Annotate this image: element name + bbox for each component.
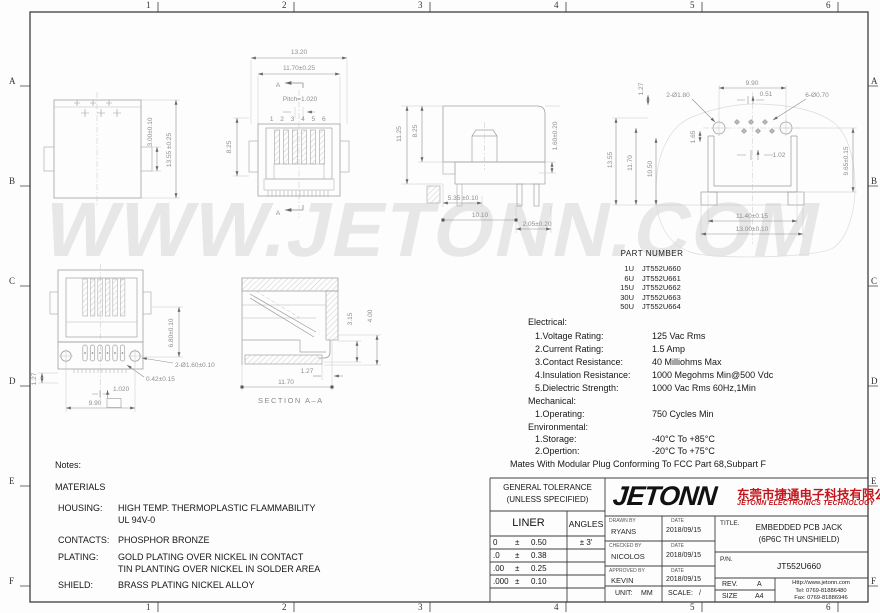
footprint-dim-11-40: 11.40±0.15 [736, 213, 768, 220]
spec-value: 1.5 Amp [652, 344, 685, 354]
part-number-title: PART NUMBER [598, 249, 706, 258]
footprint-dim-1-65: 1.65 [690, 130, 697, 143]
spec-line: 3.Contact Resistance:40 Milliohms Max [535, 357, 623, 367]
spec-value: 750 Cycles Min [652, 409, 714, 419]
tol-digits: .000 [493, 577, 509, 586]
housing-label: HOUSING: [58, 503, 103, 513]
front-view-pin-numbers: 1 2 3 4 5 6 [270, 116, 328, 123]
spec-line: 2.Current Rating:1.5 Amp [535, 344, 604, 354]
spec-value: 1000 Megohms Min@500 Vdc [652, 370, 773, 380]
bottom-view-pitch: 1.020 [113, 386, 130, 393]
side-view-dim-5-35: 5.35 ±0.10 [448, 195, 479, 202]
materials-heading: MATERIALS [55, 482, 105, 492]
checked-by-label: CHECKED BY [609, 543, 642, 549]
drawn-date: 2018/09/15 [666, 527, 701, 534]
top-view-dim-3-00: 3.00±0.10 [147, 117, 154, 146]
grid-row-label: C [871, 276, 877, 286]
spec-value: 1000 Vac Rms 60Hz,1Min [652, 383, 756, 393]
pn-label: P/N. [720, 556, 733, 563]
tol-pm: ± [515, 551, 519, 560]
part-pn: JT552U661 [642, 274, 681, 283]
front-view [233, 58, 349, 218]
company-name-english: JETONN ELECTRONICS TECHNOLOGY [737, 500, 875, 507]
drawing-sheet: WWW.JETONN.COM [0, 0, 880, 613]
part-number-row: 15UJT552U662 [602, 283, 681, 292]
spec-label: 2.Opertion: [535, 446, 580, 456]
part-pn: JT552U660 [642, 264, 681, 273]
part-qty: 6U [602, 274, 634, 283]
spec-line: 4.Insulation Resistance:1000 Megohms Min… [535, 370, 631, 380]
front-view-dim-11-70: 11.70±0.25 [283, 65, 315, 72]
general-tolerance-line1: GENERAL TOLERANCE [490, 483, 605, 492]
part-qty: 30U [602, 293, 634, 302]
part-number-row: 50UJT552U664 [602, 302, 681, 311]
approved-by-label: APPROVED BY [609, 568, 645, 574]
footprint-dim-1-02: 1.02 [773, 152, 786, 159]
spec-label: 2.Current Rating: [535, 344, 604, 354]
side-view-dim-10-10: 10.10 [472, 212, 489, 219]
drawn-by-name: RYANS [611, 527, 636, 536]
plating-label: PLATING: [58, 552, 98, 562]
spec-value: -40°C To +85°C [652, 434, 715, 444]
bottom-view [38, 264, 183, 412]
grid-row-label: D [9, 376, 16, 386]
grid-row-label: F [9, 576, 14, 586]
top-view-dim-13-55: 13.55 ±0.25 [166, 132, 173, 167]
contacts-label: CONTACTS: [58, 535, 109, 545]
housing-value: UL 94V-0 [118, 515, 155, 525]
part-pn: JT552U662 [642, 283, 681, 292]
front-view-section-mark-bottom: A [276, 210, 281, 217]
part-number-row: 1UJT552U660 [602, 264, 681, 273]
grid-col-label: 3 [418, 602, 423, 612]
notes-heading: Notes: [55, 460, 81, 470]
footprint-dim-9-65: 9.65±0.15 [843, 146, 850, 175]
grid-row-label: F [871, 576, 876, 586]
tol-pm: ± [515, 538, 519, 547]
part-pn: JT552U664 [642, 302, 681, 311]
grid-col-label: 5 [690, 0, 695, 10]
tel: Tel: 0769-81886480 [776, 588, 866, 594]
side-view-dim-11-25: 11.25 [396, 126, 403, 142]
unit-label: UNIT: [615, 590, 633, 597]
scale-label: SCALE: [668, 590, 693, 597]
pn-value: JT552U660 [733, 561, 865, 571]
spec-label: 1.Storage: [535, 434, 577, 444]
drawing-title-line1: EMBEDDED PCB JACK [733, 523, 865, 532]
bottom-view-dim-1-27: 1.27 [31, 372, 38, 385]
top-view [44, 92, 180, 206]
grid-row-label: C [9, 276, 15, 286]
tol-value: 0.10 [531, 577, 547, 586]
grid-row-label: D [871, 376, 878, 386]
footprint-dim-9-90: 9.90 [746, 80, 759, 87]
spec-label: 1.Operating: [535, 409, 585, 419]
part-number-row: 30UJT552U663 [602, 293, 681, 302]
part-number-row: 6UJT552U661 [602, 274, 681, 283]
spec-line: 1.Voltage Rating:125 Vac Rms [535, 331, 604, 341]
bottom-view-holes-label: 2-Ø1.60±0.10 [175, 362, 215, 369]
footprint-dim-13-55: 13.55 [607, 151, 614, 168]
grid-col-label: 3 [418, 0, 423, 10]
part-qty: 15U [602, 283, 634, 292]
bottom-view-dim-0-42: 0.42±0.15 [146, 376, 175, 383]
footprint-dim-13-00: 13.00±0.10 [736, 226, 769, 233]
website: Http://www.jetonn.com [776, 580, 866, 586]
grid-col-label: 1 [146, 0, 151, 10]
grid-row-label: A [871, 76, 878, 86]
grid-row-label: E [9, 476, 15, 486]
footprint-holes-small-label: 6-Ø0.70 [805, 92, 829, 99]
grid-col-label: 4 [554, 602, 559, 612]
size-label: SIZE [722, 593, 738, 600]
section-dim-3-15: 3.15 [347, 312, 354, 325]
contacts-value: PHOSPHOR BRONZE [118, 535, 210, 545]
part-qty: 1U [602, 264, 634, 273]
bottom-view-dim-6-80: 6.80±0.10 [168, 318, 175, 347]
unit-value: MM [641, 590, 653, 597]
fax: Fax: 0769-81886946 [776, 595, 866, 601]
grid-row-label: B [9, 176, 15, 186]
section-dim-11-70: 11.70 [278, 379, 294, 386]
tol-pm: ± [515, 564, 519, 573]
footprint-dim-10-50: 10.50 [647, 160, 654, 177]
date-label: DATE [671, 543, 684, 549]
grid-col-label: 6 [826, 0, 831, 10]
footprint-dim-1-27: 1.27 [638, 82, 645, 95]
size-value: A4 [755, 593, 764, 600]
spec-line: 5.Dielectric Strength:1000 Vac Rms 60Hz,… [535, 383, 619, 393]
part-pn: JT552U663 [642, 293, 681, 302]
section-dim-4-00: 4.00 [367, 309, 374, 322]
grid-row-label: B [871, 176, 877, 186]
spec-line: 1.Storage:-40°C To +85°C [535, 434, 577, 444]
footprint-dim-11-70: 11.70 [627, 155, 634, 171]
liner-header: LINER [490, 517, 567, 529]
tol-value: 0.38 [531, 551, 547, 560]
section-view-label: SECTION A–A [258, 396, 324, 405]
tol-value: 0.25 [531, 564, 547, 573]
general-tolerance-line2: (UNLESS SPECIFIED) [490, 495, 605, 504]
angles-value: ± 3' [567, 538, 605, 547]
approved-date: 2018/09/15 [666, 576, 701, 583]
spec-line: 2.Opertion:-20°C To +75°C [535, 446, 580, 456]
shield-value: BRASS PLATING NICKEL ALLOY [118, 580, 255, 590]
front-view-dim-13-20: 13.20 [291, 49, 308, 56]
part-qty: 50U [602, 302, 634, 311]
tol-digits: 0 [493, 538, 497, 547]
spec-footnote: Mates With Modular Plug Conforming To FC… [510, 459, 766, 469]
grid-row-label: A [9, 76, 16, 86]
environmental-heading: Environmental: [528, 422, 588, 432]
scale-value: / [699, 590, 701, 597]
grid-col-label: 1 [146, 602, 151, 612]
drawn-by-label: DRAWN BY [609, 518, 636, 524]
date-label: DATE [671, 568, 684, 574]
spec-value: 125 Vac Rms [652, 331, 705, 341]
checked-date: 2018/09/15 [666, 552, 701, 559]
front-view-pitch: Pitch=1.020 [283, 96, 318, 103]
tol-pm: ± [515, 577, 519, 586]
side-view-dim-8-25: 8.25 [412, 124, 419, 137]
electrical-heading: Electrical: [528, 317, 567, 327]
spec-label: 3.Contact Resistance: [535, 357, 623, 367]
front-view-section-mark-top: A [276, 82, 281, 89]
plating-value: TIN PLANTING OVER NICKEL IN SOLDER AREA [118, 564, 320, 574]
tol-digits: .0 [493, 551, 500, 560]
rev-value: A [757, 581, 762, 588]
grid-col-label: 5 [690, 602, 695, 612]
front-view-dim-8-25: 8.25 [226, 140, 233, 153]
grid-col-label: 6 [826, 602, 831, 612]
grid-col-label: 2 [282, 602, 287, 612]
spec-label: 4.Insulation Resistance: [535, 370, 631, 380]
grid-col-label: 4 [554, 0, 559, 10]
footprint-holes-large-label: 2-Ø1.80 [666, 92, 690, 99]
mechanical-heading: Mechanical: [528, 396, 576, 406]
tol-digits: .00 [493, 564, 504, 573]
housing-value: HIGH TEMP. THERMOPLASTIC FLAMMABILITY [118, 503, 316, 513]
approved-by-name: KEVIN [611, 576, 634, 585]
shield-label: SHIELD: [58, 580, 93, 590]
bottom-view-dim-9-90: 9.90 [89, 400, 102, 407]
footprint-dim-0-51: 0.51 [760, 91, 773, 98]
spec-value: 40 Milliohms Max [652, 357, 722, 367]
tol-value: 0.50 [531, 538, 547, 547]
rev-label: REV. [722, 581, 738, 588]
spec-value: -20°C To +75°C [652, 446, 715, 456]
drawing-title-line2: (6P6C TH UNSHIELD) [733, 535, 865, 544]
date-label: DATE [671, 518, 684, 524]
spec-label: 1.Voltage Rating: [535, 331, 604, 341]
plating-value: GOLD PLATING OVER NICKEL IN CONTACT [118, 552, 303, 562]
jetonn-logo: JETONN [611, 481, 717, 512]
spec-label: 5.Dielectric Strength: [535, 383, 619, 393]
grid-col-label: 2 [282, 0, 287, 10]
section-dim-1-27: 1.27 [301, 368, 314, 375]
side-view-dim-1-60: 1.60±0.20 [552, 121, 559, 150]
checked-by-name: NICOLOS [611, 552, 645, 561]
side-view-dim-2-05: 2.05±0.20 [523, 221, 552, 228]
spec-line: 1.Operating:750 Cycles Min [535, 409, 585, 419]
angles-header: ANGLES [567, 519, 605, 529]
